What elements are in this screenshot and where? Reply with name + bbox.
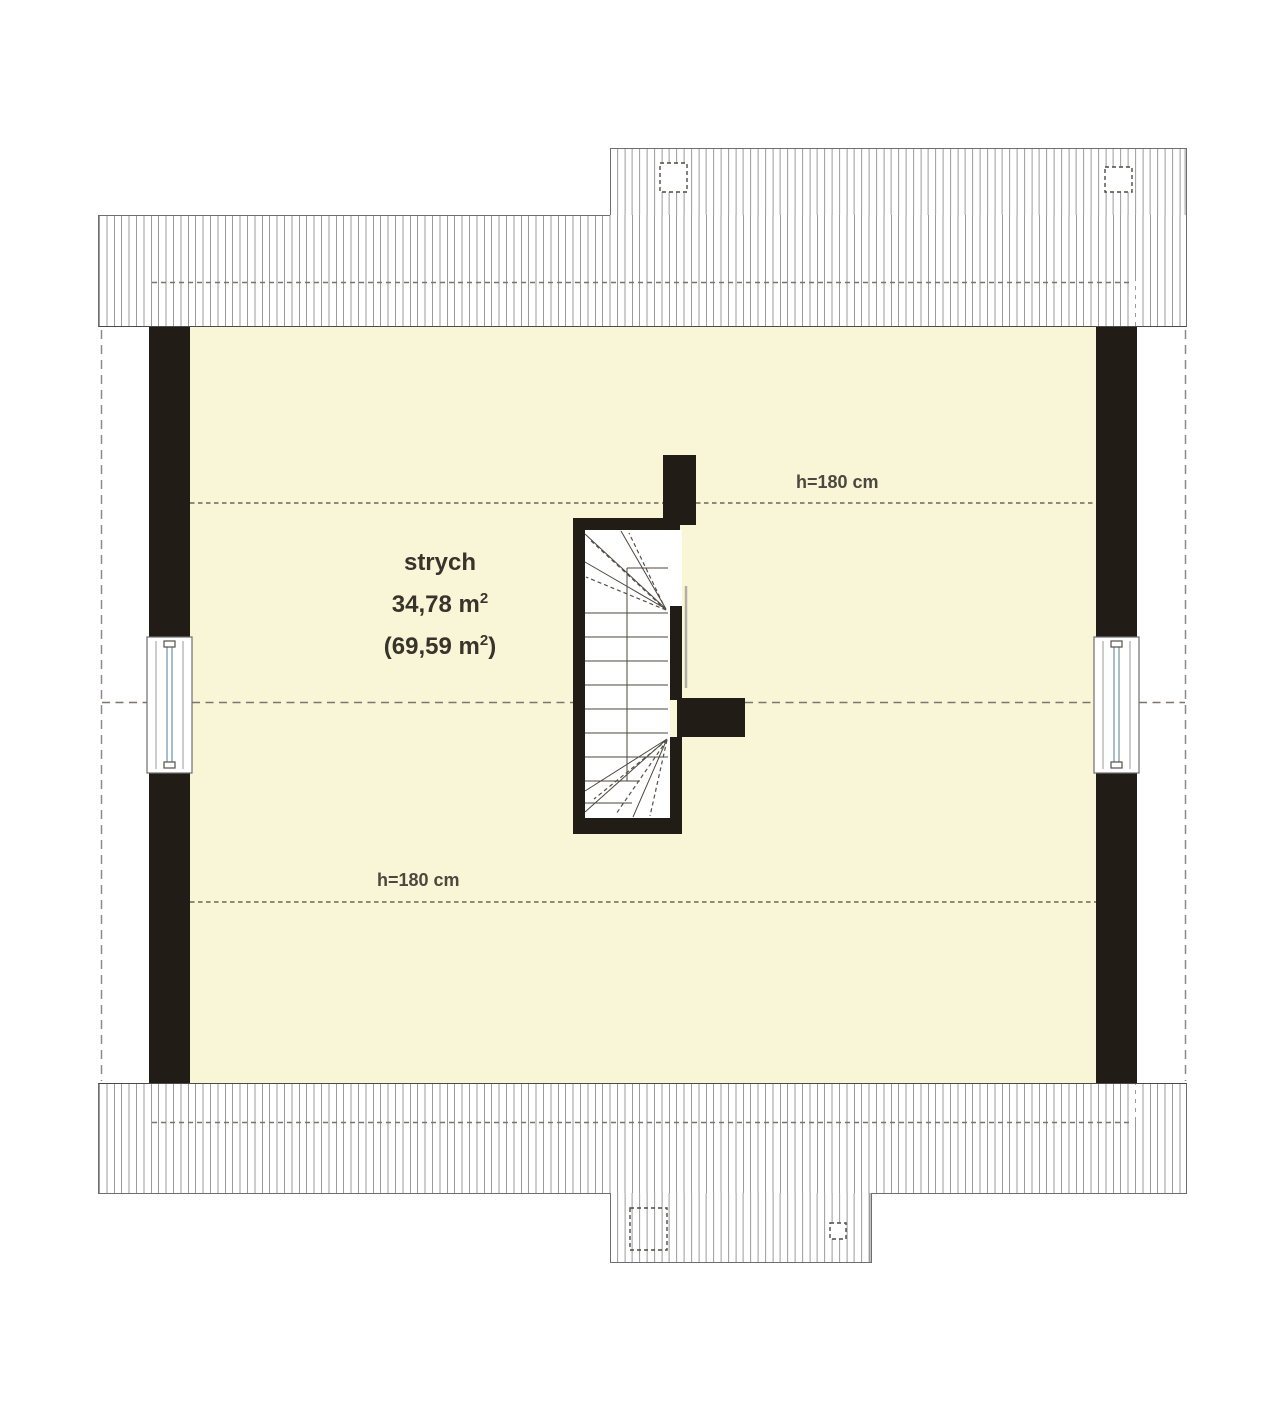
right-window-frame [1094, 637, 1139, 773]
stair-stub-wall [677, 698, 745, 737]
stair-wall-right-lower [670, 737, 682, 818]
stair-wall-right-upper [670, 606, 682, 700]
top-dormer-square-right [1105, 167, 1132, 192]
stair-wall-left [573, 518, 585, 834]
right-window [1094, 637, 1139, 773]
height-label-lower: h=180 cm [377, 870, 460, 891]
right-window-cap-top [1111, 641, 1122, 647]
bottom-dormer-square-left [630, 1208, 667, 1250]
stair-wall-bottom [573, 818, 682, 834]
left-window-frame [147, 637, 192, 773]
room-label: strych 34,78 m2 (69,59 m2) [340, 542, 540, 668]
stair-pillar [663, 455, 696, 525]
right-window-cap-bottom [1111, 762, 1122, 768]
height-label-upper: h=180 cm [796, 472, 879, 493]
room-area: 34,78 m2 [340, 584, 540, 626]
attic-floor-plan: strych 34,78 m2 (69,59 m2) h=180 cm h=18… [0, 0, 1280, 1422]
plan-linework [0, 0, 1280, 1422]
room-name: strych [340, 542, 540, 584]
left-window-cap-top [164, 641, 175, 647]
left-window-cap-bottom [164, 762, 175, 768]
stair-entry-gap [670, 530, 682, 608]
top-dormer-square-left [660, 163, 687, 192]
left-window [147, 637, 192, 773]
bottom-dormer-square-right [830, 1223, 846, 1239]
staircase [573, 455, 745, 834]
room-area-total: (69,59 m2) [340, 626, 540, 668]
